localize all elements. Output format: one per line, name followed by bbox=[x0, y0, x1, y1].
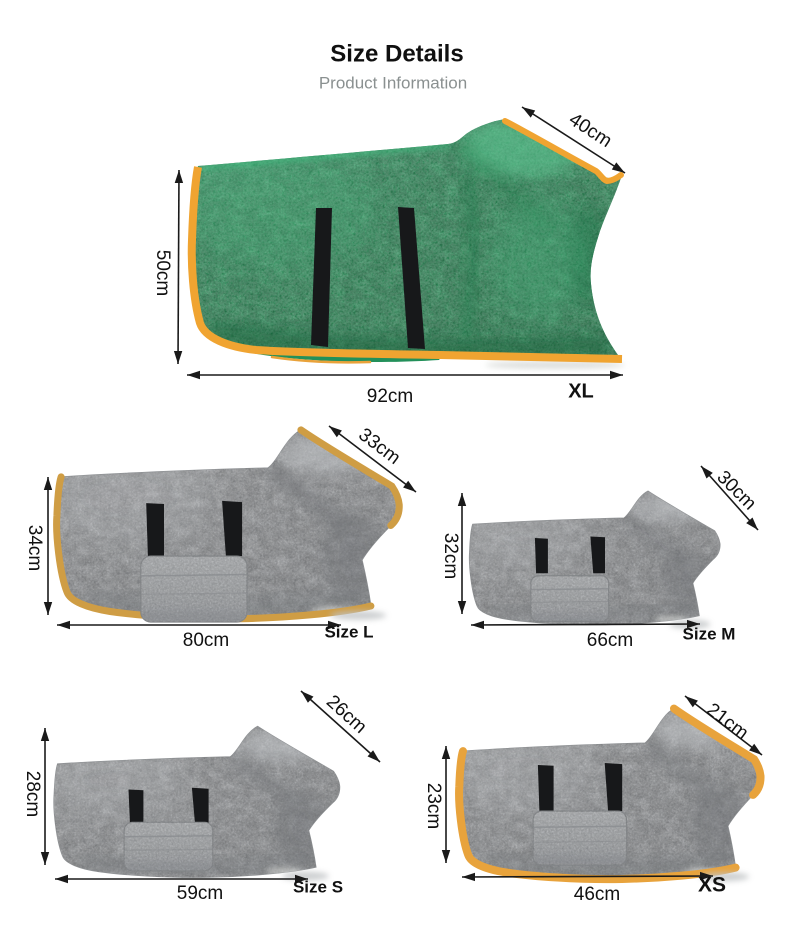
svg-text:50cm: 50cm bbox=[152, 250, 173, 296]
svg-text:32cm: 32cm bbox=[440, 533, 461, 579]
svg-text:XS: XS bbox=[698, 874, 726, 897]
svg-text:23cm: 23cm bbox=[423, 783, 444, 829]
svg-text:Size S: Size S bbox=[293, 877, 343, 896]
svg-text:34cm: 34cm bbox=[24, 525, 45, 571]
svg-text:92cm: 92cm bbox=[367, 386, 413, 407]
svg-text:Size L: Size L bbox=[324, 622, 373, 641]
svg-text:Size M: Size M bbox=[683, 624, 736, 643]
svg-text:66cm: 66cm bbox=[587, 630, 633, 651]
svg-text:28cm: 28cm bbox=[22, 771, 43, 817]
svg-text:80cm: 80cm bbox=[183, 630, 229, 651]
svg-text:Product Information: Product Information bbox=[319, 73, 467, 92]
svg-text:Size Details: Size Details bbox=[330, 40, 463, 67]
svg-text:XL: XL bbox=[568, 380, 594, 402]
svg-text:46cm: 46cm bbox=[574, 884, 620, 905]
svg-text:59cm: 59cm bbox=[177, 883, 223, 904]
